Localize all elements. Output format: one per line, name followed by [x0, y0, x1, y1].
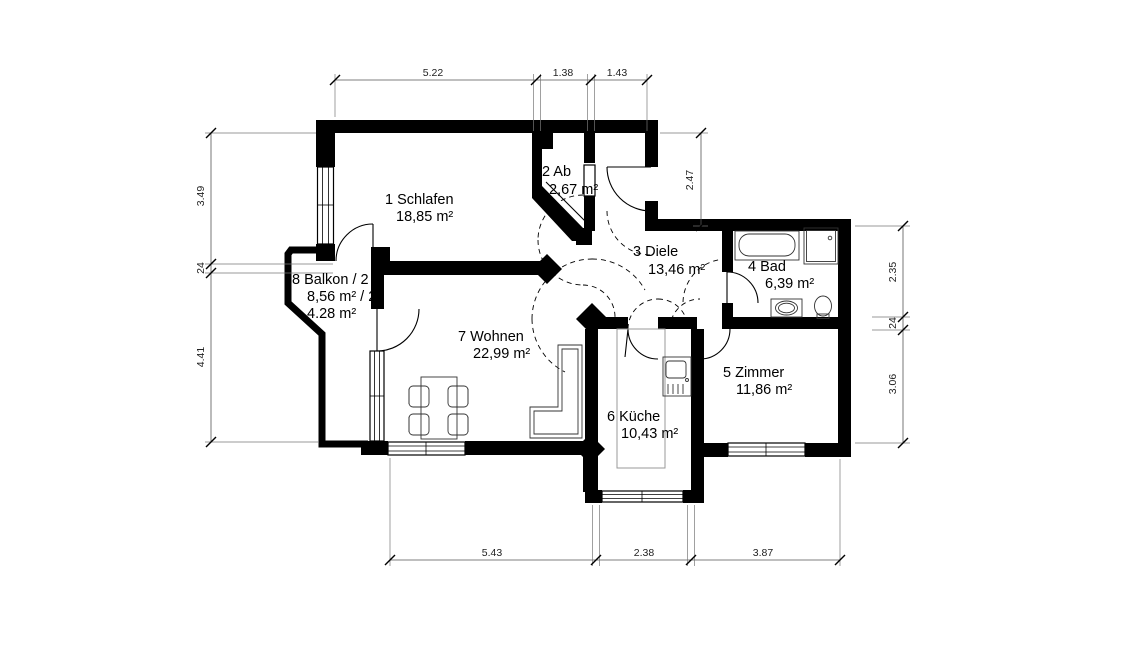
room-label-zimmer: 5 Zimmer — [723, 365, 784, 381]
room-area-zimmer: 11,86 m² — [736, 382, 792, 398]
kitchen-counter-outline — [617, 329, 665, 468]
kueche-door — [625, 329, 658, 359]
balcony-door-wohnen — [377, 309, 419, 351]
room-area-ab: 2,67 m² — [549, 182, 598, 198]
room-area-bad: 6,39 m² — [765, 276, 814, 292]
dim-left-1: 3.49 — [195, 186, 207, 207]
dim-right-3: 3.06 — [887, 374, 899, 395]
room-label-kueche: 6 Küche — [607, 409, 660, 425]
entrance-door — [607, 167, 651, 211]
dim-left-2: 24 — [195, 262, 207, 274]
dim-bottom-3: 3.87 — [753, 547, 774, 559]
room-area-balkon: 8,56 m² / 2 — [307, 289, 376, 305]
bad-door — [727, 272, 758, 303]
zimmer-door — [700, 329, 730, 359]
wall-pillar — [316, 120, 335, 167]
dim-right-inner: 2.47 — [684, 170, 696, 191]
room-area-diele: 13,46 m² — [648, 262, 705, 278]
dim-bottom-1: 5.43 — [482, 547, 503, 559]
room-label-schlafen: 1 Schlafen — [385, 192, 454, 208]
wall-node — [575, 434, 605, 464]
dim-top-1: 5.22 — [423, 67, 444, 79]
dim-left-3: 4.41 — [195, 347, 207, 368]
dim-bottom-2: 2.38 — [634, 547, 655, 559]
kitchen-sink-symbol — [663, 357, 691, 396]
room-label-wohnen: 7 Wohnen — [458, 329, 524, 345]
shower-symbol — [804, 228, 838, 264]
chair-symbol — [448, 414, 468, 435]
dim-right-1: 2.35 — [887, 262, 899, 283]
room-area-wohnen: 22,99 m² — [473, 346, 530, 362]
window-wohnen-bottom — [388, 442, 465, 455]
balcony-door-schlafen — [336, 224, 373, 261]
room-area-schlafen: 18,85 m² — [396, 209, 453, 225]
room-label-ab: 2 Ab — [542, 164, 571, 180]
window-wohnen-left — [370, 351, 384, 441]
room-label-diele: 3 Diele — [633, 244, 678, 260]
window-kueche-bottom — [602, 491, 683, 502]
dim-top-2: 1.38 — [553, 67, 574, 79]
room-label-balkon: 8 Balkon / 2 — [292, 272, 369, 288]
room-label-bad: 4 Bad — [748, 259, 786, 275]
window-schlafen — [318, 167, 334, 244]
duct — [536, 133, 553, 149]
floor-plan: 1 Schlafen 18,85 m² 2 Ab 2,67 m² 3 Diele… — [0, 0, 1124, 663]
sofa-symbol — [530, 345, 582, 438]
chair-symbol — [409, 386, 429, 407]
room-area2-balkon: 4.28 m² — [307, 306, 356, 322]
bathtub-symbol — [735, 231, 799, 260]
washbasin-symbol — [771, 299, 802, 317]
chair-symbol — [448, 386, 468, 407]
toilet-symbol — [815, 296, 832, 319]
dim-right-2: 24 — [887, 317, 899, 329]
room-area-kueche: 10,43 m² — [621, 426, 678, 442]
chair-symbol — [409, 414, 429, 435]
dim-top-3: 1.43 — [607, 67, 628, 79]
wall-node — [532, 254, 562, 284]
window-zimmer-bottom — [728, 443, 805, 456]
